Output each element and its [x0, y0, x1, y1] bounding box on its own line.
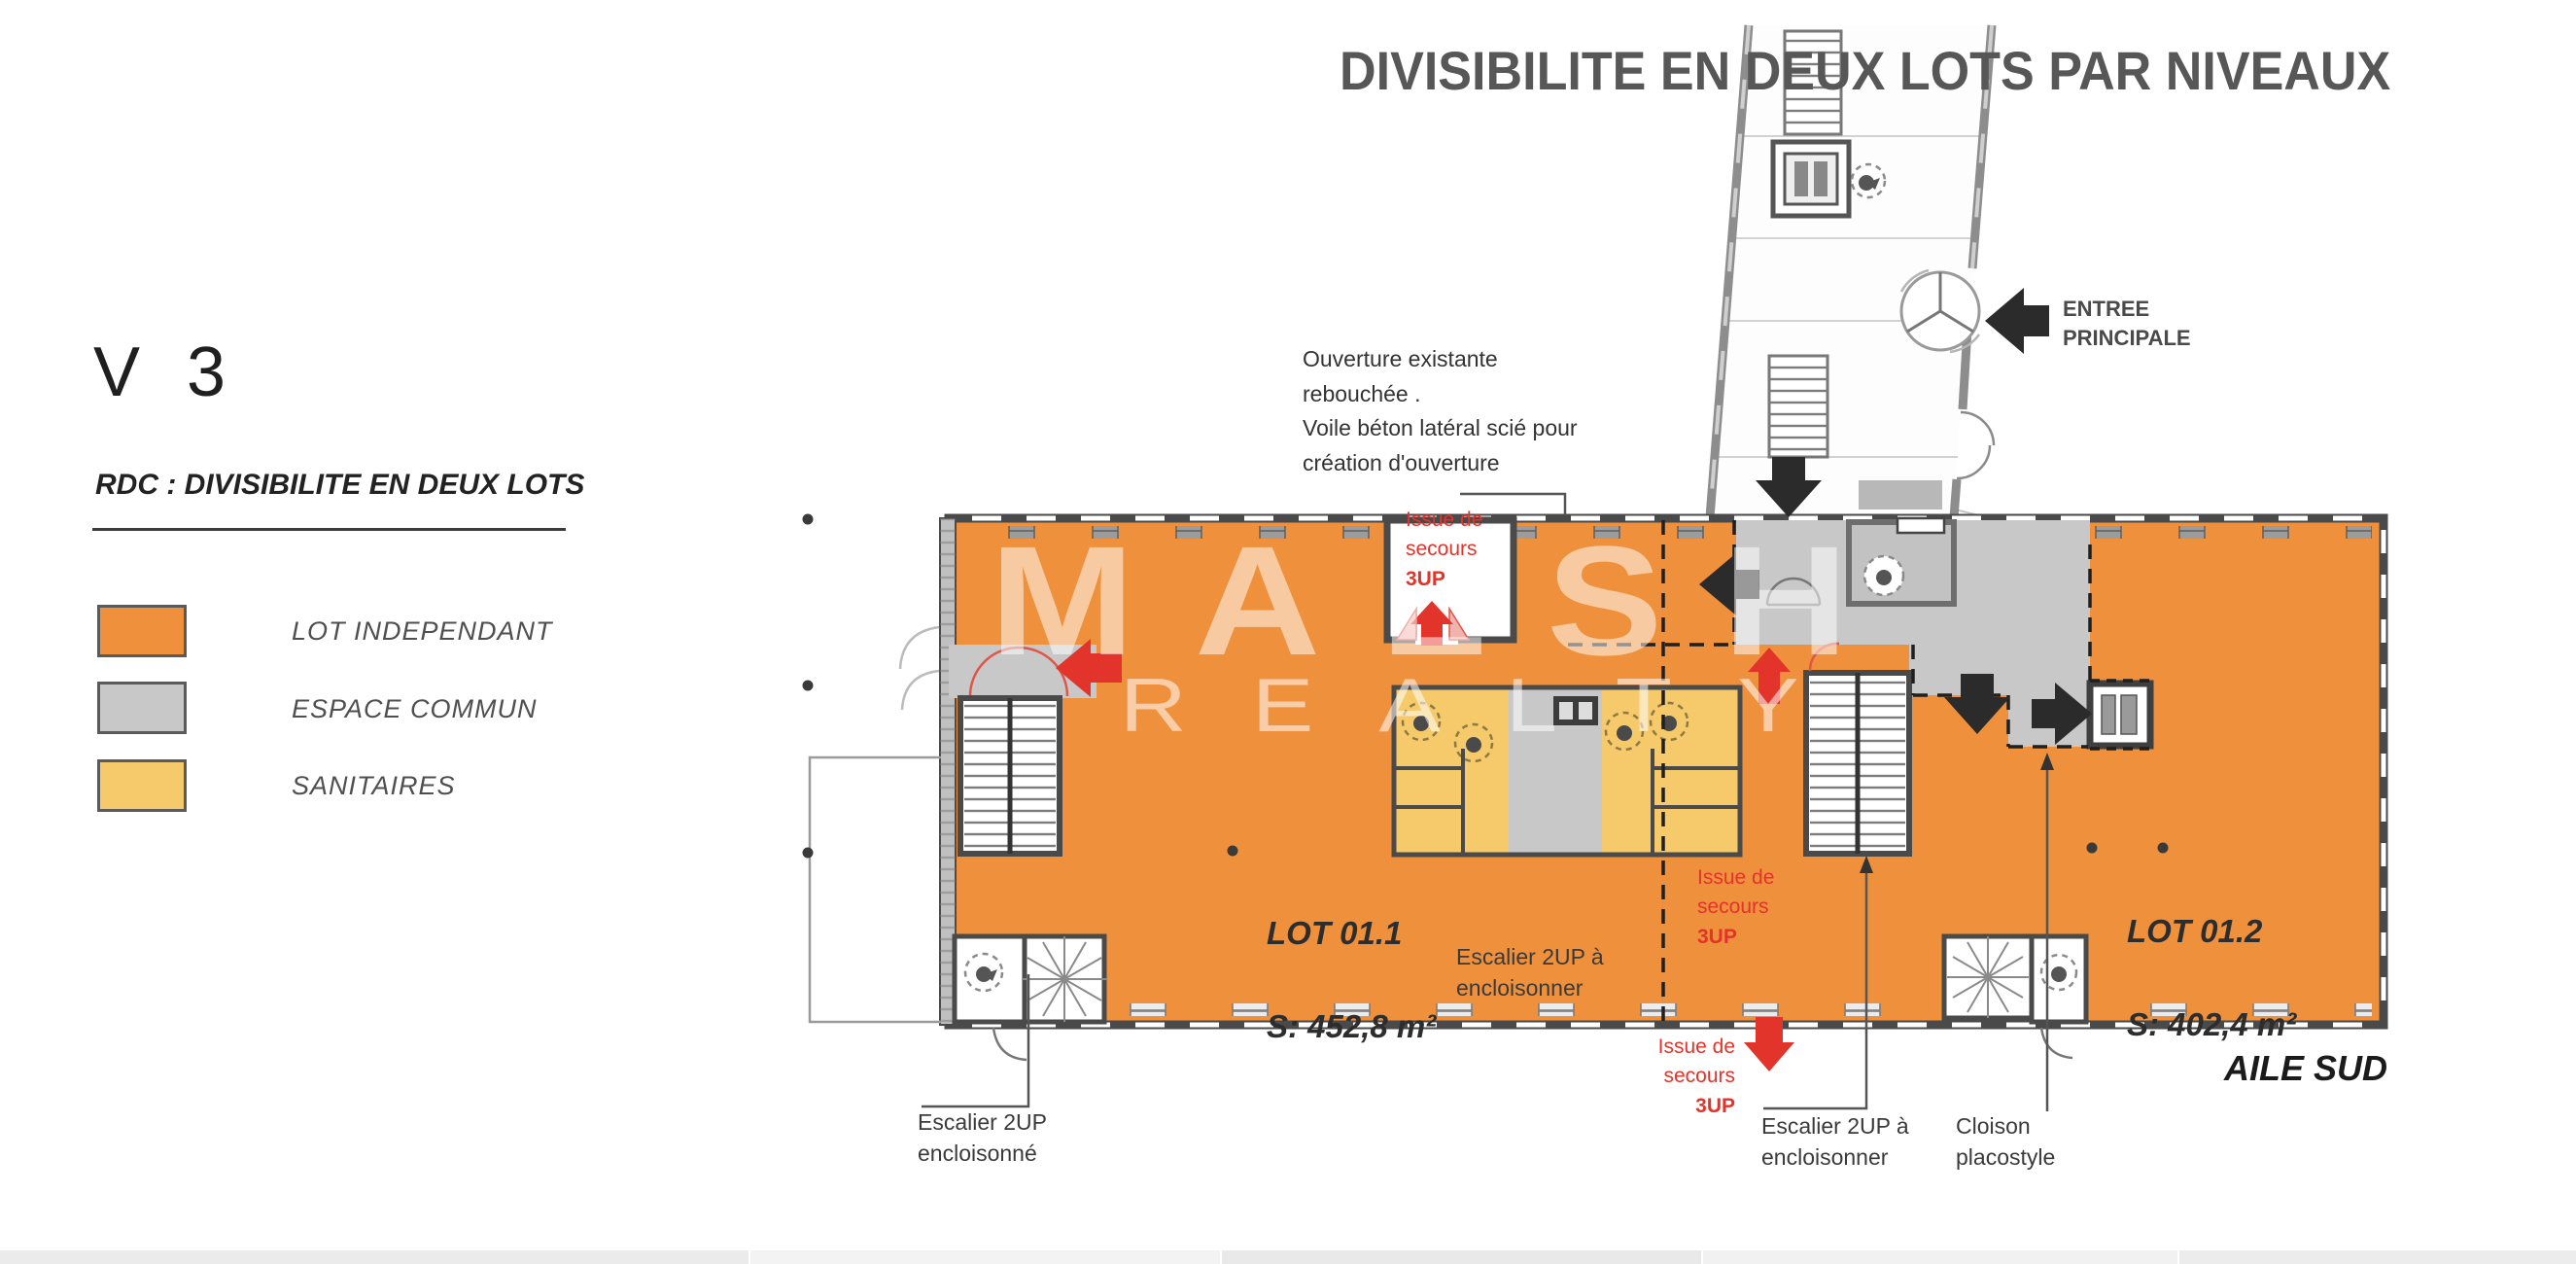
wing-elevator-icon	[1773, 142, 1849, 216]
note-escalier-left: Escalier 2UP encloisonné	[918, 1106, 1047, 1169]
wing-double-door-icon	[1957, 412, 1994, 478]
exit-note-room-lines: Issue de secours	[1406, 506, 1482, 565]
stairwell-left	[960, 698, 1060, 854]
page: MALSH REALTY DIVISIBILITE EN DEUX LOTS P…	[0, 0, 2576, 1264]
plan-heading: RDC : DIVISIBILITE EN DEUX LOTS	[95, 469, 584, 502]
wing-name-label: AILE SUD	[2224, 1048, 2387, 1089]
entree-arrow-icon	[1985, 288, 2049, 354]
entrance-mat	[1859, 480, 1942, 509]
exit-note-mid-lines: Issue de secours	[1697, 863, 1774, 923]
heading-underline	[92, 528, 566, 531]
exit-note-room-up: 3UP	[1406, 565, 1482, 594]
page-title: DIVISIBILITE EN DEUX LOTS PAR NIVEAUX	[1340, 39, 2390, 102]
exit-note-room: Issue de secours 3UP	[1406, 506, 1482, 594]
wing-stair-icon	[1769, 356, 1828, 457]
lot-1-label: LOT 01.1 S: 452,8 m²	[1267, 863, 1436, 1096]
watermark-sub: REALTY	[1120, 661, 1864, 750]
exit-note-bottom-lines: Issue de secours	[1614, 1033, 1735, 1092]
legend-label-lot: LOT INDEPENDANT	[292, 616, 553, 647]
legend-swatch-sanitaires	[97, 759, 187, 812]
lot-2-area: S: 402,4 m²	[2127, 1001, 2296, 1048]
lot-2-name: LOT 01.2	[2127, 908, 2296, 955]
legend-label-common: ESPACE COMMUN	[292, 694, 538, 724]
legend-label-sanitaires: SANITAIRES	[292, 771, 456, 801]
legend-swatch-lot	[97, 605, 187, 657]
note-escalier-bottom: Escalier 2UP à encloisonner	[1761, 1110, 1909, 1173]
note-escalier-center: Escalier 2UP à encloisonner	[1456, 941, 1604, 1003]
note-entree-principale: ENTREE PRINCIPALE	[2063, 295, 2191, 352]
note-cloison: Cloison placostyle	[1956, 1110, 2055, 1173]
spiral-stair-right	[1944, 936, 2086, 1058]
exit-note-mid-up: 3UP	[1697, 923, 1774, 952]
exit-note-bottom-up: 3UP	[1614, 1092, 1735, 1121]
terrace-outline	[810, 627, 941, 1022]
exit-note-bottom: Issue de secours 3UP	[1614, 1033, 1735, 1121]
lot-1-name: LOT 01.1	[1267, 910, 1436, 957]
bottom-edge-strip	[0, 1250, 2576, 1264]
revolving-door-icon	[1901, 270, 1979, 352]
lot-1-area: S: 452,8 m²	[1267, 1003, 1436, 1050]
version-label: V 3	[93, 333, 239, 412]
exit-note-mid: Issue de secours 3UP	[1697, 863, 1774, 952]
spiral-stair-left	[955, 936, 1107, 1060]
note-ouverture: Ouverture existante rebouchée . Voile bé…	[1303, 342, 1578, 481]
north-wing	[1709, 25, 2090, 543]
elevator-right-icon	[2090, 684, 2150, 746]
legend-swatch-common	[97, 682, 187, 734]
